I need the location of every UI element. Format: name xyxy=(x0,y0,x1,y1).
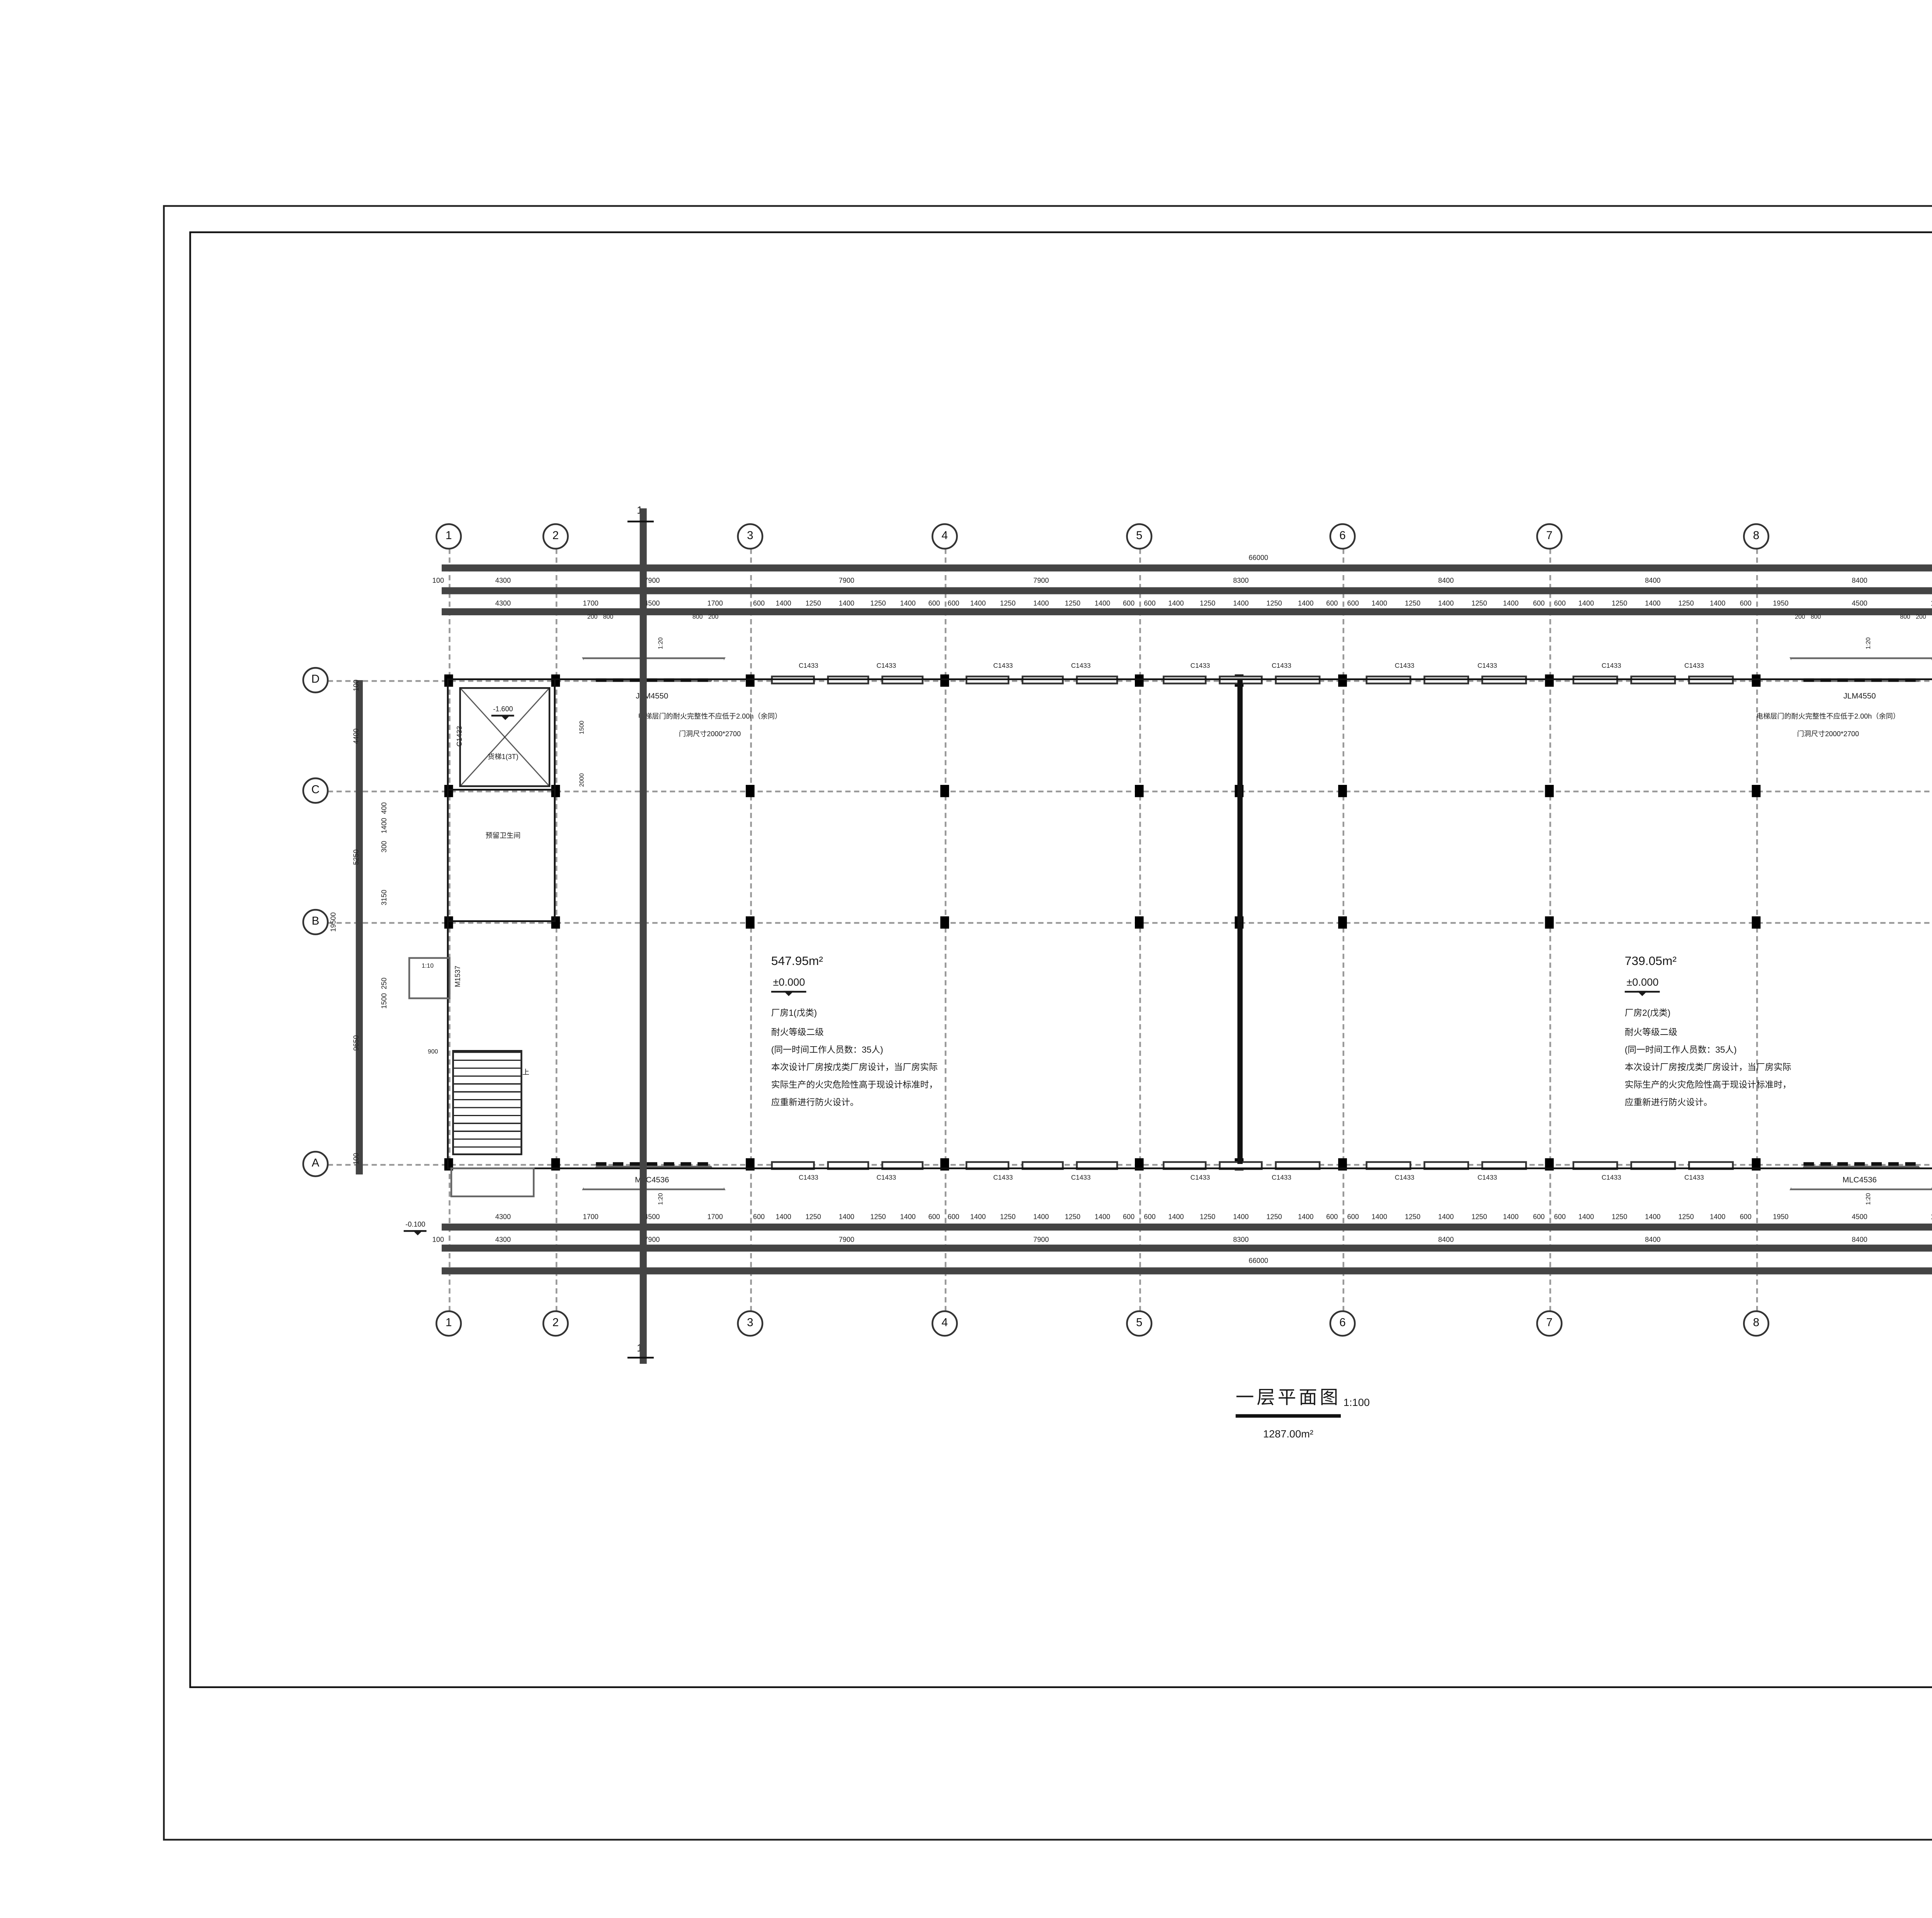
window-label: C1433 xyxy=(1272,1174,1291,1181)
window-label: C1433 xyxy=(1602,663,1621,670)
plan-title: 一层平面图 xyxy=(1236,1384,1341,1417)
dim-label: 250 xyxy=(379,977,388,989)
dim-label: 1250 xyxy=(1200,1212,1215,1221)
plan-total-area: 1287.00m² xyxy=(1263,1430,1313,1441)
dim-label: 300 xyxy=(379,841,388,853)
rolling-door-top-left xyxy=(596,677,708,681)
dim-label: 600 xyxy=(753,1212,765,1221)
plan-text: 800 xyxy=(692,614,703,621)
dimension-line xyxy=(442,608,1932,615)
dim-label: 1250 xyxy=(1678,1212,1694,1221)
dim-label: 4300 xyxy=(495,598,511,607)
dim-label: 8400 xyxy=(1645,576,1660,585)
dim-label: 1250 xyxy=(1065,1212,1080,1221)
window-label: C1433 xyxy=(876,663,896,670)
dim-label: 600 xyxy=(1326,1212,1338,1221)
dim-label: 1400 xyxy=(1298,1212,1313,1221)
dim-label: 1400 xyxy=(1645,598,1660,607)
dim-label: 100 xyxy=(432,576,444,585)
grid-bubble: 3 xyxy=(737,1310,763,1337)
grid-bubble: 2 xyxy=(543,1310,569,1337)
dim-label: 1250 xyxy=(1678,598,1694,607)
dim-label: 1400 xyxy=(776,598,791,607)
dim-label: 1400 xyxy=(1233,598,1248,607)
dim-label: 1250 xyxy=(870,598,886,607)
dim-label: 600 xyxy=(928,1212,940,1221)
dimension-line xyxy=(442,1223,1932,1230)
dim-label: 1250 xyxy=(1266,1212,1282,1221)
dim-label: 1250 xyxy=(1200,598,1215,607)
dim-label: 600 xyxy=(947,1212,959,1221)
dim-label: 1400 xyxy=(1233,1212,1248,1221)
grid-bubble: 1 xyxy=(435,523,462,550)
dim-label: 600 xyxy=(1347,598,1359,607)
dim-label: 1400 xyxy=(776,1212,791,1221)
dim-label: 1250 xyxy=(1405,598,1420,607)
dim-label: 8300 xyxy=(1233,576,1248,585)
dim-label: 8400 xyxy=(1852,576,1867,585)
dim-label: 8400 xyxy=(1438,576,1454,585)
window-label: C1433 xyxy=(1071,663,1091,670)
dim-label: 8400 xyxy=(1852,1234,1867,1243)
dimension-line xyxy=(442,565,1932,572)
window-label: C1433 xyxy=(1602,1174,1621,1181)
dim-label: 7900 xyxy=(1033,576,1049,585)
dim-label: 400 xyxy=(379,802,388,814)
dimension-line xyxy=(442,1266,1932,1273)
dim-label: 1400 xyxy=(900,1212,915,1221)
dim-label: 4300 xyxy=(495,1212,511,1221)
rolling-door-bottom-right xyxy=(1803,1162,1915,1166)
plan-text: 900 xyxy=(428,1048,438,1055)
grid-bubble: 8 xyxy=(1743,1310,1769,1337)
left-core-wall-h2 xyxy=(449,920,556,922)
window-label: C1433 xyxy=(993,663,1013,670)
dim-label: 1400 xyxy=(1710,598,1725,607)
dim-label: 600 xyxy=(1144,1212,1155,1221)
dim-label: 1700 xyxy=(707,598,723,607)
dim-label: 600 xyxy=(1533,1212,1544,1221)
freight-elevator-1 xyxy=(459,687,550,787)
plan-text: 800 xyxy=(603,614,614,621)
dim-label: 1950 xyxy=(1931,1212,1932,1221)
dim-label: 1400 xyxy=(1298,598,1313,607)
dim-label: 9650 xyxy=(351,1035,360,1051)
dim-label: 1250 xyxy=(1612,598,1627,607)
dim-label: 600 xyxy=(1533,598,1544,607)
dim-label: 4300 xyxy=(495,1234,511,1243)
dim-label: 1250 xyxy=(1065,598,1080,607)
grid-bubble: 1 xyxy=(435,1310,462,1337)
ramp-side-left xyxy=(408,957,451,999)
window-label: C1433 xyxy=(1684,1174,1704,1181)
window-label: C1433 xyxy=(1395,1174,1415,1181)
dim-label: 1400 xyxy=(1710,1212,1725,1221)
dim-label: 1400 xyxy=(1503,1212,1519,1221)
dim-label: 100 xyxy=(351,679,360,691)
dimension-line xyxy=(442,1244,1932,1251)
dim-label: 3150 xyxy=(379,890,388,905)
stair-left xyxy=(452,1050,522,1155)
dim-label: 4300 xyxy=(495,576,511,585)
dim-label: 100 xyxy=(432,1234,444,1243)
grid-bubble: 4 xyxy=(932,1310,958,1337)
window-label: C1433 xyxy=(1190,663,1210,670)
dim-label: 1250 xyxy=(805,598,821,607)
dim-label: 100 xyxy=(351,1153,360,1164)
grid-bubble: C xyxy=(302,778,328,804)
grid-bubble: 6 xyxy=(1329,523,1355,550)
dim-label: 7900 xyxy=(839,1234,854,1243)
dim-label: 1700 xyxy=(707,1212,723,1221)
dim-label: 1250 xyxy=(1612,1212,1627,1221)
dim-label: 1400 xyxy=(970,1212,986,1221)
dim-label: 1250 xyxy=(1000,598,1015,607)
a1-sheet: 1122334455667788991010AABBCCDD1001004300… xyxy=(0,0,1932,1918)
dim-total: 66000 xyxy=(1249,1256,1268,1265)
dim-label: 4400 xyxy=(351,728,360,744)
dim-label: 1400 xyxy=(1033,598,1049,607)
dividing-firewall xyxy=(1237,680,1242,1164)
ramp-bottom-right xyxy=(1789,1166,1932,1190)
dim-label: 1400 xyxy=(1503,598,1519,607)
window-label: C1433 xyxy=(876,1174,896,1181)
window-label: C1433 xyxy=(799,1174,818,1181)
window-label: C1433 xyxy=(1395,663,1415,670)
plan-text: 200 xyxy=(708,614,719,621)
dim-label: 1400 xyxy=(1578,1212,1594,1221)
plan-text: 1:20 xyxy=(1865,1193,1872,1205)
dim-label: 1400 xyxy=(1095,598,1110,607)
plan-text: 1:20 xyxy=(657,1193,664,1205)
dim-label: 1250 xyxy=(1471,598,1487,607)
grid-bubble: 5 xyxy=(1126,523,1152,550)
dim-label: 1250 xyxy=(1405,1212,1420,1221)
dim-label: 600 xyxy=(1347,1212,1359,1221)
window-label: C1433 xyxy=(1190,1174,1210,1181)
dim-label: 7900 xyxy=(839,576,854,585)
dim-total: 66000 xyxy=(1249,553,1268,562)
dim-label: 1400 xyxy=(1095,1212,1110,1221)
window-label: C1433 xyxy=(799,663,818,670)
grid-bubble: 5 xyxy=(1126,1310,1152,1337)
grid-bubble: 8 xyxy=(1743,523,1769,550)
dim-label: 600 xyxy=(1740,1212,1752,1221)
dim-label: 1950 xyxy=(1931,598,1932,607)
dim-label: 1400 xyxy=(1372,598,1387,607)
drawing-sheet-page: 1122334455667788991010AABBCCDD1001004300… xyxy=(0,0,1932,1918)
left-core-wall-h1 xyxy=(449,789,556,791)
plan-text: 200 xyxy=(1916,614,1926,621)
dim-label: 1250 xyxy=(1000,1212,1015,1221)
dim-label: 600 xyxy=(1740,598,1752,607)
canopy-bottom-left xyxy=(451,1167,535,1197)
dim-label: 1400 xyxy=(1168,1212,1184,1221)
dimension-line xyxy=(356,680,363,1174)
dim-label: 600 xyxy=(1123,1212,1134,1221)
window-label: C1433 xyxy=(1478,1174,1497,1181)
dim-label: 600 xyxy=(1123,598,1134,607)
building-outline xyxy=(447,678,1932,1169)
grid-bubble: 3 xyxy=(737,523,763,550)
window-label: C1433 xyxy=(1478,663,1497,670)
dim-label: 4500 xyxy=(1852,598,1867,607)
dim-label: 1950 xyxy=(1773,1212,1788,1221)
plan-text: 800 xyxy=(1900,614,1910,621)
grid-bubble: D xyxy=(302,667,328,693)
dim-label: 5250 xyxy=(351,849,360,865)
dim-label: 1950 xyxy=(1773,598,1788,607)
dim-label: 1400 xyxy=(1168,598,1184,607)
plan-text: 200 xyxy=(587,614,598,621)
dim-label: 1400 xyxy=(900,598,915,607)
window-label: C1433 xyxy=(1071,1174,1091,1181)
dim-total: 19500 xyxy=(328,912,337,932)
window-label: C1433 xyxy=(1272,663,1291,670)
dim-label: 1250 xyxy=(1471,1212,1487,1221)
plan-text: 1:20 xyxy=(1865,637,1872,649)
dim-label: 1400 xyxy=(970,598,986,607)
dim-label: 7900 xyxy=(1033,1234,1049,1243)
dim-label: 8300 xyxy=(1233,1234,1248,1243)
dim-label: 4500 xyxy=(1852,1212,1867,1221)
dim-label: 1400 xyxy=(1645,1212,1660,1221)
dim-label: 1400 xyxy=(1438,1212,1454,1221)
dim-label: 8400 xyxy=(1645,1234,1660,1243)
dim-label: 1400 xyxy=(379,818,388,833)
grid-bubble: 7 xyxy=(1536,1310,1563,1337)
window-label: C1433 xyxy=(993,1174,1013,1181)
dim-label: 1400 xyxy=(1438,598,1454,607)
section-tick-bottom xyxy=(628,1357,654,1359)
dimension-line xyxy=(442,586,1932,593)
left-core-wall-v xyxy=(554,680,556,922)
dim-label: 1250 xyxy=(870,1212,886,1221)
dim-label: 1400 xyxy=(1033,1212,1049,1221)
window-label: C1433 xyxy=(1684,663,1704,670)
dim-label: 1400 xyxy=(1372,1212,1387,1221)
dim-label: 1700 xyxy=(583,1212,598,1221)
grid-bubble: 2 xyxy=(543,523,569,550)
dim-label: 600 xyxy=(1144,598,1155,607)
dim-label: 1500 xyxy=(379,993,388,1009)
plan-scale: 1:100 xyxy=(1344,1399,1370,1409)
plan-text: 1:20 xyxy=(657,637,664,649)
grid-bubble: 7 xyxy=(1536,523,1563,550)
dim-label: 1250 xyxy=(805,1212,821,1221)
plan-text: -0.100 xyxy=(404,1220,427,1231)
dim-label: 600 xyxy=(753,598,765,607)
grid-bubble: 4 xyxy=(932,523,958,550)
section-line-1 xyxy=(640,508,647,1364)
dim-label: 1400 xyxy=(1578,598,1594,607)
rolling-door-top-right xyxy=(1803,677,1915,681)
rolling-door-bottom-left xyxy=(596,1162,708,1166)
dim-label: 1700 xyxy=(583,598,598,607)
ramp-bottom-left xyxy=(582,1166,726,1190)
grid-bubble: 6 xyxy=(1329,1310,1355,1337)
dim-label: 1400 xyxy=(839,598,854,607)
plan-text: 800 xyxy=(1811,614,1821,621)
dim-label: 600 xyxy=(928,598,940,607)
dim-label: 600 xyxy=(1554,1212,1566,1221)
dim-label: 8400 xyxy=(1438,1234,1454,1243)
dim-label: 1400 xyxy=(839,1212,854,1221)
grid-bubble: B xyxy=(302,909,328,935)
grid-bubble: A xyxy=(302,1151,328,1177)
dim-label: 1250 xyxy=(1266,598,1282,607)
section-tick-top xyxy=(628,521,654,523)
plan-text: 200 xyxy=(1795,614,1805,621)
dim-label: 600 xyxy=(1554,598,1566,607)
dim-label: 600 xyxy=(1326,598,1338,607)
dim-label: 600 xyxy=(947,598,959,607)
